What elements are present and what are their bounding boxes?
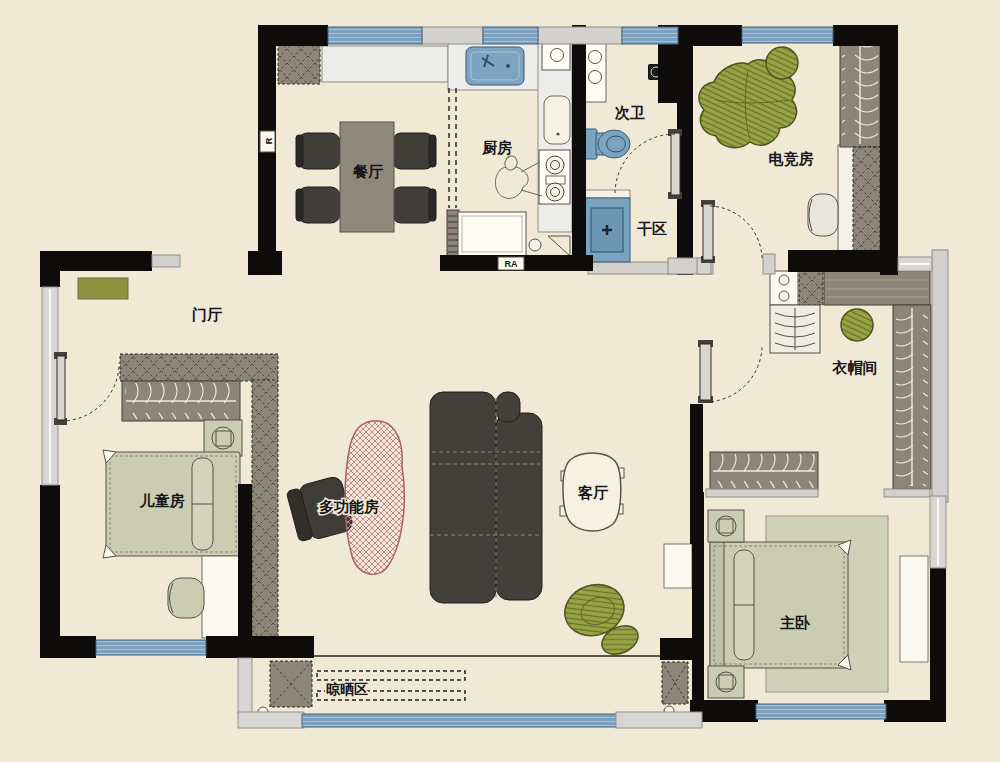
kids-desk — [202, 556, 240, 638]
kids-chair — [168, 578, 204, 618]
window — [483, 27, 538, 44]
side-cabinet — [664, 544, 692, 588]
nightstand — [708, 666, 744, 698]
washer-dryer-column — [584, 42, 606, 102]
window — [756, 704, 886, 719]
nightstand — [708, 510, 744, 542]
wardrobe-shelves — [853, 147, 880, 255]
cabinet-cell — [799, 271, 823, 305]
wardrobe-hangers — [840, 42, 880, 147]
tv-cabinet — [900, 556, 928, 662]
vanity-sink — [584, 190, 630, 262]
room-label-kids: 儿童房 — [139, 492, 185, 509]
floorplan-canvas: 餐厅 厨房 次卫 干区 电竞房 门厅 儿童房 多功能房 客厅 衣帽间 主卧 晾晒… — [0, 0, 1000, 762]
window-frame-top-right — [898, 257, 932, 271]
floorplan-svg: 餐厅 厨房 次卫 干区 电竞房 门厅 儿童房 多功能房 客厅 衣帽间 主卧 晾晒… — [0, 0, 1000, 762]
desk-chair — [808, 194, 838, 236]
wardrobe-bottom-hanging — [710, 452, 818, 490]
marker-ra: RA — [498, 257, 524, 270]
stool-green — [841, 309, 873, 341]
lower-cabinet-strip — [447, 210, 459, 256]
stove — [539, 150, 570, 204]
window — [302, 714, 618, 727]
window — [328, 27, 422, 44]
ottoman — [766, 47, 798, 79]
toilet — [584, 129, 630, 159]
dining-chair — [392, 133, 434, 169]
cutting-board — [544, 96, 570, 144]
room-label-dry: 干区 — [637, 220, 667, 237]
dining-room — [278, 41, 448, 232]
kitchen-sink — [466, 47, 524, 85]
room-label-dining: 餐厅 — [352, 163, 384, 180]
top-wardrobe-band — [824, 271, 930, 305]
dining-chair — [392, 187, 434, 223]
room-label-master: 主卧 — [780, 614, 811, 631]
window — [622, 27, 678, 44]
room-label-esports: 电竞房 — [769, 150, 814, 167]
nightstand — [204, 420, 242, 456]
storage-cabinet — [278, 41, 320, 84]
foyer — [78, 278, 128, 299]
window-frame-master-right — [930, 496, 946, 568]
sofa — [430, 392, 542, 603]
fridge — [458, 212, 526, 256]
marker-r: R — [260, 131, 275, 152]
wardrobe-right-hanging — [893, 305, 931, 489]
room-label-living: 客厅 — [577, 484, 609, 501]
svg-text:R: R — [264, 137, 274, 144]
closet-top-shelves — [120, 354, 278, 381]
dining-chair — [298, 133, 340, 169]
threshold — [588, 262, 678, 274]
closet-side-shelves — [252, 380, 278, 638]
dining-sideboard — [322, 46, 448, 82]
drying-rack-cabinet — [770, 305, 820, 353]
window — [96, 640, 206, 655]
room-label-foyer: 门厅 — [192, 306, 223, 323]
counter-circle — [529, 239, 541, 251]
room-label-drying: 晾晒区 — [326, 681, 368, 697]
dining-chair — [298, 187, 340, 223]
master-bed — [710, 540, 851, 670]
room-label-bath2: 次卫 — [614, 104, 645, 121]
headboard — [710, 542, 724, 668]
window — [742, 27, 833, 43]
shoe-cabinet — [770, 271, 798, 305]
closet-hanging — [122, 381, 240, 421]
room-label-kitchen: 厨房 — [481, 139, 512, 156]
window-frame-left — [42, 287, 58, 485]
doormat — [78, 278, 128, 299]
svg-text:RA: RA — [505, 259, 518, 269]
room-label-cloak: 衣帽间 — [832, 359, 878, 376]
room-label-multi: 多功能房 — [319, 498, 379, 515]
